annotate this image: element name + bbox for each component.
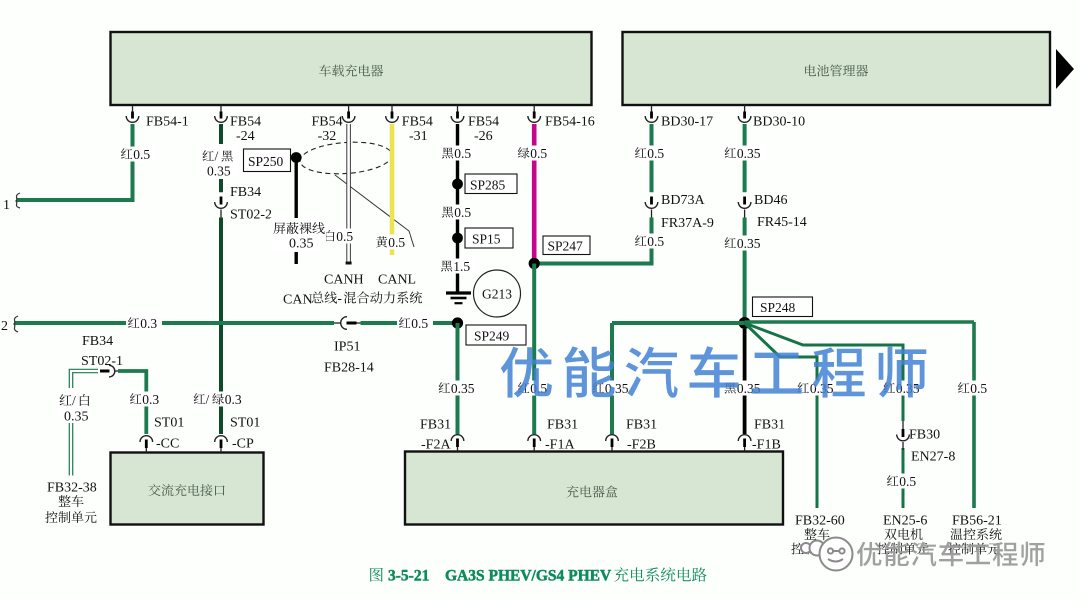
svg-text:FB31: FB31 xyxy=(626,418,657,433)
svg-text:-31: -31 xyxy=(409,129,428,144)
svg-text:0.3: 0.3 xyxy=(140,316,157,331)
svg-text:CANH: CANH xyxy=(324,273,364,288)
svg-text:0.5: 0.5 xyxy=(454,205,471,220)
svg-text:-: - xyxy=(337,292,342,307)
svg-text:FB54: FB54 xyxy=(468,114,499,129)
svg-text:-32: -32 xyxy=(318,129,337,144)
svg-text:0.35: 0.35 xyxy=(451,381,475,396)
svg-text:-F2A: -F2A xyxy=(421,438,451,453)
svg-text:FB54-1: FB54-1 xyxy=(146,114,189,129)
svg-text:EN25-6: EN25-6 xyxy=(883,514,927,529)
svg-text:/: / xyxy=(206,392,210,407)
svg-text:0.3: 0.3 xyxy=(225,392,242,407)
svg-text:SP285: SP285 xyxy=(470,178,506,193)
svg-text:1.5: 1.5 xyxy=(453,259,470,274)
svg-text:-26: -26 xyxy=(474,129,493,144)
svg-text:ST02-1: ST02-1 xyxy=(81,354,123,369)
svg-text:BD73A: BD73A xyxy=(661,193,705,208)
svg-text:0.5: 0.5 xyxy=(411,316,428,331)
svg-text:FB54-16: FB54-16 xyxy=(545,114,595,129)
svg-text:-24: -24 xyxy=(236,129,255,144)
svg-text:0.5: 0.5 xyxy=(454,146,471,161)
svg-text:/: / xyxy=(72,393,76,408)
svg-text:0.35: 0.35 xyxy=(737,236,761,251)
svg-text:0.3: 0.3 xyxy=(142,392,159,407)
svg-text:-F1B: -F1B xyxy=(752,438,781,453)
svg-text:0.35: 0.35 xyxy=(64,410,89,425)
svg-text:FR37A-9: FR37A-9 xyxy=(661,216,714,231)
svg-text:0.5: 0.5 xyxy=(970,381,987,396)
svg-text:0.35: 0.35 xyxy=(289,237,314,252)
svg-text:SP248: SP248 xyxy=(760,300,796,315)
svg-text:0.5: 0.5 xyxy=(388,235,405,250)
svg-text:0.5: 0.5 xyxy=(336,229,353,244)
svg-text:IP51: IP51 xyxy=(334,340,360,355)
svg-text:0.5: 0.5 xyxy=(647,146,664,161)
svg-text:FB56-21: FB56-21 xyxy=(952,514,1002,529)
svg-text:-CP: -CP xyxy=(232,437,254,452)
svg-text:GA3S PHEV/GS4 PHEV: GA3S PHEV/GS4 PHEV xyxy=(445,568,612,585)
svg-text:FB34: FB34 xyxy=(230,185,261,200)
svg-text:EN27-8: EN27-8 xyxy=(911,450,955,465)
svg-text:FB54: FB54 xyxy=(312,114,343,129)
svg-text:ST01: ST01 xyxy=(230,416,260,431)
svg-text:2: 2 xyxy=(1,319,8,334)
svg-text:BD46: BD46 xyxy=(754,193,787,208)
svg-text:FB31: FB31 xyxy=(754,418,785,433)
svg-text:ST02-2: ST02-2 xyxy=(230,208,272,223)
svg-text:FB28-14: FB28-14 xyxy=(324,361,374,376)
svg-text:1: 1 xyxy=(3,198,10,213)
svg-text:FB34: FB34 xyxy=(82,334,113,349)
svg-text:0.35: 0.35 xyxy=(737,146,761,161)
svg-text:FB32-60: FB32-60 xyxy=(795,514,845,529)
svg-text:SP15: SP15 xyxy=(472,232,501,247)
svg-text:SP250: SP250 xyxy=(248,154,284,169)
svg-text:CAN: CAN xyxy=(283,293,313,308)
svg-text:FR45-14: FR45-14 xyxy=(757,215,807,230)
svg-text:FB31: FB31 xyxy=(420,418,451,433)
svg-text:0.5: 0.5 xyxy=(647,234,664,249)
svg-text:FB30: FB30 xyxy=(909,428,940,443)
svg-text:0.5: 0.5 xyxy=(530,146,547,161)
svg-text:FB32-38: FB32-38 xyxy=(47,481,97,496)
svg-text:0.5: 0.5 xyxy=(133,147,150,162)
svg-text:-F2B: -F2B xyxy=(627,438,656,453)
svg-text:BD30-17: BD30-17 xyxy=(661,114,713,129)
svg-text:CANL: CANL xyxy=(378,273,416,288)
svg-text:FB54: FB54 xyxy=(402,114,433,129)
svg-text:SP247: SP247 xyxy=(548,239,584,254)
svg-text:BD30-10: BD30-10 xyxy=(753,114,805,129)
svg-text:3-5-21: 3-5-21 xyxy=(388,568,429,585)
svg-text:SP249: SP249 xyxy=(474,329,510,344)
svg-text:FB31: FB31 xyxy=(547,418,578,433)
svg-text:ST01: ST01 xyxy=(154,416,184,431)
svg-text:-F1A: -F1A xyxy=(545,438,575,453)
svg-text:0.35: 0.35 xyxy=(207,164,231,179)
svg-text:G213: G213 xyxy=(482,287,512,302)
svg-text:/: / xyxy=(215,149,219,164)
svg-text:-CC: -CC xyxy=(156,437,179,452)
svg-text:0.5: 0.5 xyxy=(899,474,916,489)
svg-text:FB54: FB54 xyxy=(230,114,261,129)
